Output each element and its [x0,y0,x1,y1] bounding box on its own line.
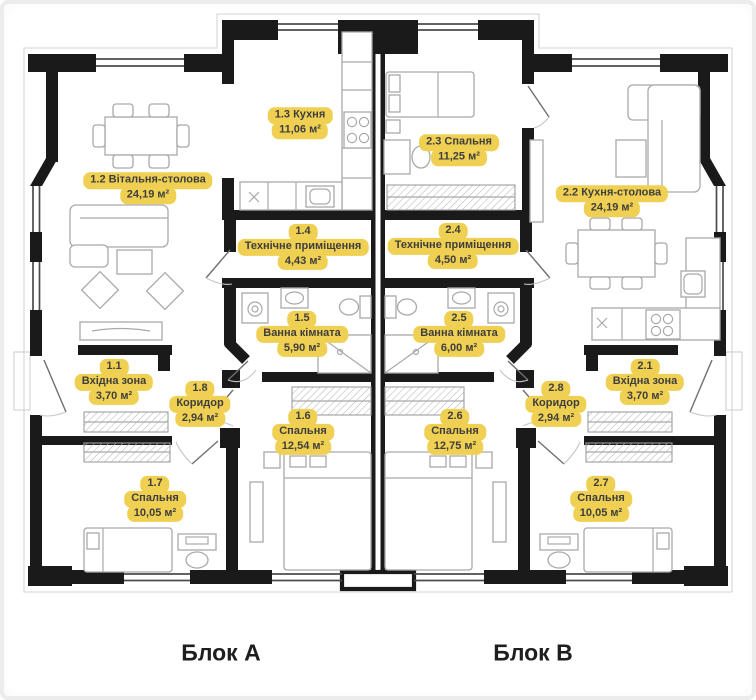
desk-icon [384,140,410,174]
armchair-icon [82,272,119,309]
room-label-line: 4,50 м² [428,252,478,269]
coffee-table-icon [117,250,152,274]
room-label-1-4: 1.4 Технічне приміщення 4,43 м² [238,225,369,269]
room-label-line: 12,75 м² [427,438,483,455]
room-label-line: 2,94 м² [531,410,581,427]
room-label-1-3: 1.3 Кухня 11,06 м² [268,108,333,138]
room-label-line: 24,19 м² [584,200,640,217]
room-label-2-2: 2.2 Кухня-столова 24,19 м² [556,186,668,216]
stove-icon [344,112,371,148]
room-label-line: Ванна кімната [413,326,505,343]
room-label-line: Вхідна зона [606,374,684,391]
room-label-line: 11,25 м² [431,149,487,166]
room-label-1-8: 1.8 Коридор 2,94 м² [169,382,230,426]
room-label-line: 10,05 м² [573,505,629,522]
floorplan-drawing [0,0,756,700]
room-label-1-2: 1.2 Вітальня-столова 24,19 м² [83,173,212,203]
room-label-1-6: 1.6 Спальня 12,54 м² [272,410,334,454]
bed-icon [284,452,371,570]
room-label-2-6: 2.6 Спальня 12,75 м² [424,410,486,454]
room-label-line: 11,06 м² [272,122,328,139]
block-b-title: Блок В [493,640,572,667]
toilet-icon [360,296,371,318]
dining-table-icon [578,230,655,277]
room-label-line: Технічне приміщення [238,239,369,256]
floor-plan-page: 1.1 Вхідна зона 3,70 м² 1.2 Вітальня-сто… [0,0,756,700]
room-label-2-8: 2.8 Коридор 2,94 м² [525,382,586,426]
cabinet-icon [530,140,543,222]
room-label-2-7: 2.7 Спальня 10,05 м² [570,477,632,521]
toilet-icon [385,296,396,318]
room-label-line: 2,94 м² [175,410,225,427]
room-label-line: 4,43 м² [278,253,328,270]
room-label-line: Вхідна зона [75,374,153,391]
stove-icon [646,310,680,339]
room-label-2-1: 2.1 Вхідна зона 3,70 м² [606,360,684,404]
room-label-line: 3,70 м² [89,388,139,405]
room-label-1-7: 1.7 Спальня 10,05 м² [124,477,186,521]
armchair-icon [147,273,184,310]
room-label-line: Спальня [570,491,632,508]
chair-icon [186,552,208,568]
room-label-line: Коридор [525,396,586,413]
room-label-2-3: 2.3 Спальня 11,25 м² [419,135,499,165]
room-label-line: Ванна кімната [256,326,348,343]
room-label-line: Спальня [272,424,334,441]
coffee-table-icon [616,140,646,177]
dining-table-icon [105,117,177,155]
living-room-a-furniture [70,104,189,340]
room-label-line: 12,54 м² [275,438,331,455]
room-label-line: 10,05 м² [127,505,183,522]
room-label-line: Спальня [124,491,186,508]
room-label-line: Коридор [169,396,230,413]
room-label-1-5: 1.5 Ванна кімната 5,90 м² [256,312,348,356]
room-label-2-4: 2.4 Технічне приміщення 4,50 м² [388,224,519,268]
block-a-title: Блок А [181,640,260,667]
room-label-2-5: 2.5 Ванна кімната 6,00 м² [413,312,505,356]
room-label-line: 24,19 м² [120,187,176,204]
room-label-line: Спальня [424,424,486,441]
room-label-line: 6,00 м² [434,340,484,357]
room-label-line: 5,90 м² [277,340,327,357]
chair-icon [548,552,570,568]
party-wall-footing [342,572,414,589]
sofa-icon [70,205,168,247]
room-label-1-1: 1.1 Вхідна зона 3,70 м² [75,360,153,404]
room-label-line: 3,70 м² [620,388,670,405]
bed-icon [385,452,472,570]
room-label-line: Технічне приміщення [388,238,519,255]
